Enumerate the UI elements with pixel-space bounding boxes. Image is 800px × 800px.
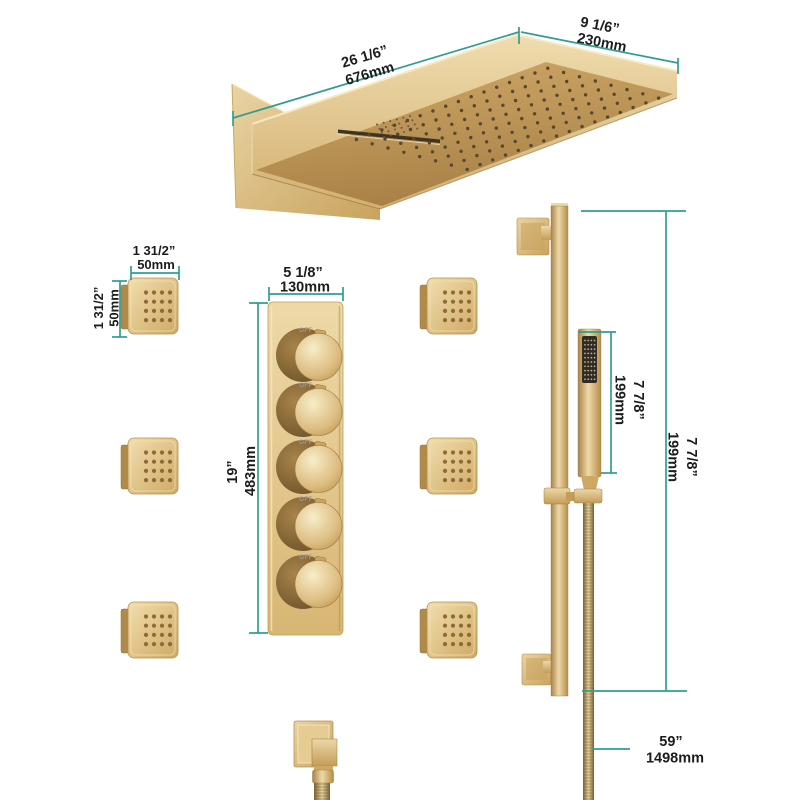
hand-shower-nozzle-dot	[594, 361, 596, 363]
rain-nozzle-dot	[444, 105, 447, 108]
rain-nozzle-dot	[540, 89, 543, 92]
mist-nozzle-dot	[381, 132, 383, 134]
rain-nozzle-dot	[434, 159, 437, 162]
wall-supply-outlet	[294, 721, 337, 800]
rain-nozzle-dot	[542, 139, 545, 142]
hand-shower-nozzle-dot	[594, 340, 596, 342]
knob-off-label: OFF	[299, 497, 313, 503]
slide-bar-length-mm: 199mm	[665, 432, 681, 482]
rain-nozzle-dot	[590, 111, 593, 114]
hand-shower-nozzle-dot	[591, 340, 593, 342]
rain-nozzle-dot	[511, 90, 514, 93]
mist-nozzle-dot	[414, 123, 416, 125]
hand-shower-nozzle-dot	[591, 365, 593, 367]
rain-nozzle-dot	[628, 97, 631, 100]
hand-shower-nozzle-dot	[584, 370, 586, 372]
hand-shower-length-mm: 199mm	[612, 375, 628, 425]
hand-shower-nozzle-dot	[584, 378, 586, 380]
rain-nozzle-dot	[529, 144, 532, 147]
hand-shower-nozzle-dot	[591, 370, 593, 372]
knob-handle	[295, 334, 342, 381]
mist-nozzle-dot	[402, 117, 404, 119]
jet-height-inches: 1 31/2”	[91, 287, 106, 330]
rain-nozzle-dot	[456, 141, 459, 144]
rain-nozzle-dot	[409, 128, 412, 131]
valve-width-mm: 130mm	[280, 280, 330, 296]
hand-shower-nozzle-dot	[594, 348, 596, 350]
slide-bar	[551, 206, 568, 696]
rain-nozzle-dot	[581, 84, 584, 87]
rain-nozzle-dot	[428, 141, 431, 144]
mist-nozzle-dot	[416, 128, 418, 130]
rain-nozzle-dot	[485, 99, 488, 102]
rain-nozzle-dot	[476, 113, 479, 116]
rain-nozzle-dot	[600, 97, 603, 100]
rain-nozzle-dot	[491, 158, 494, 161]
rain-nozzle-dot	[524, 85, 527, 88]
rain-nozzle-dot	[504, 153, 507, 156]
thermostatic-valve: OFFOFFOFFOFFOFF	[268, 302, 343, 635]
rain-nozzle-dot	[577, 116, 580, 119]
hand-shower-nozzle-dot	[591, 378, 593, 380]
rain-nozzle-dot	[367, 133, 370, 136]
rain-nozzle-dot	[393, 124, 396, 127]
rain-nozzle-dot	[526, 135, 529, 138]
rain-nozzle-dot	[587, 102, 590, 105]
rain-nozzle-dot	[482, 131, 485, 134]
slide-bar-assembly	[517, 203, 568, 696]
mist-nozzle-dot	[401, 127, 403, 129]
rain-nozzle-dot	[488, 149, 491, 152]
rain-nozzle-dot	[406, 119, 409, 122]
rain-nozzle-dot	[425, 132, 428, 135]
hand-shower-nozzle-dot	[587, 365, 589, 367]
rain-nozzle-dot	[466, 127, 469, 130]
rain-nozzle-dot	[527, 94, 530, 97]
rain-nozzle-dot	[450, 163, 453, 166]
valve-height-inches: 19”	[225, 460, 241, 483]
hand-shower-nozzle-dot	[584, 357, 586, 359]
rain-nozzle-dot	[498, 135, 501, 138]
knob-handle	[295, 503, 342, 550]
rain-nozzle-dot	[552, 85, 555, 88]
rain-nozzle-dot	[475, 154, 478, 157]
rain-nozzle-dot	[419, 114, 422, 117]
rain-nozzle-dot	[415, 146, 418, 149]
rain-nozzle-dot	[580, 125, 583, 128]
rain-nozzle-dot	[657, 96, 660, 99]
mist-nozzle-dot	[398, 123, 400, 125]
rain-nozzle-dot	[584, 93, 587, 96]
hand-shower-nozzle-dot	[587, 340, 589, 342]
knob-off-label: OFF	[299, 440, 313, 446]
mist-nozzle-dot	[403, 131, 405, 133]
rain-nozzle-dot	[568, 130, 571, 133]
hose-length-mm: 1498mm	[646, 751, 704, 767]
rain-nozzle-dot	[619, 111, 622, 114]
rain-nozzle-dot	[507, 122, 510, 125]
rain-nozzle-dot	[469, 136, 472, 139]
rain-nozzle-dot	[558, 103, 561, 106]
rain-nozzle-dot	[546, 67, 549, 70]
rain-nozzle-dot	[501, 104, 504, 107]
rain-nozzle-dot	[546, 107, 549, 110]
rain-nozzle-dot	[568, 89, 571, 92]
rain-nozzle-dot	[495, 126, 498, 129]
rain-nozzle-dot	[609, 84, 612, 87]
body-jet	[420, 278, 477, 334]
outlet-nut	[313, 770, 334, 783]
hand-shower-nozzle-dot	[594, 353, 596, 355]
knob-off-label: OFF	[299, 328, 313, 334]
rain-shower-head	[232, 35, 677, 220]
dim-valve-width: 5 1/8” 130mm	[269, 265, 343, 301]
rain-nozzle-dot	[520, 117, 523, 120]
hand-shower-holder	[574, 489, 602, 503]
rain-nozzle-dot	[533, 112, 536, 115]
rain-nozzle-dot	[485, 140, 488, 143]
valve-knobs: OFFOFFOFFOFFOFF	[276, 328, 342, 609]
hand-shower-nozzle-dot	[584, 340, 586, 342]
hand-shower-nozzle-dot	[584, 374, 586, 376]
rain-nozzle-dot	[616, 102, 619, 105]
hand-shower-nozzle-dot	[587, 361, 589, 363]
rain-nozzle-dot	[523, 126, 526, 129]
rain-nozzle-dot	[457, 100, 460, 103]
rain-nozzle-dot	[355, 138, 358, 141]
rain-nozzle-dot	[470, 95, 473, 98]
rain-nozzle-dot	[450, 123, 453, 126]
hand-shower-length-inches: 7 7/8”	[630, 380, 646, 420]
hand-shower-nozzle-dot	[591, 374, 593, 376]
mist-nozzle-dot	[378, 128, 380, 130]
hand-shower-nozzle-dot	[587, 348, 589, 350]
hand-shower-nozzle-dot	[584, 353, 586, 355]
hand-shower-nozzle-dot	[584, 365, 586, 367]
mist-nozzle-dot	[387, 130, 389, 132]
hand-shower-nozzle-dot	[594, 357, 596, 359]
rain-nozzle-dot	[447, 154, 450, 157]
rain-nozzle-dot	[460, 109, 463, 112]
hand-shower-nozzle-dot	[594, 374, 596, 376]
hand-shower-nozzle-dot	[591, 348, 593, 350]
hand-shower-nozzle-dot	[584, 361, 586, 363]
rain-nozzle-dot	[510, 131, 513, 134]
hand-shower-nozzle-dot	[584, 348, 586, 350]
valve-height-mm: 483mm	[243, 446, 259, 496]
rain-nozzle-dot	[463, 118, 466, 121]
jet-width-inches: 1 31/2”	[133, 243, 176, 258]
hand-shower-nozzle-dot	[587, 378, 589, 380]
rain-nozzle-dot	[396, 133, 399, 136]
rain-nozzle-dot	[466, 168, 469, 171]
rain-nozzle-dot	[501, 144, 504, 147]
rain-nozzle-dot	[593, 120, 596, 123]
rain-nozzle-dot	[495, 86, 498, 89]
rain-nozzle-dot	[492, 117, 495, 120]
mist-nozzle-dot	[376, 124, 378, 126]
outlet-elbow	[312, 739, 337, 766]
rain-nozzle-dot	[412, 137, 415, 140]
rain-nozzle-dot	[422, 123, 425, 126]
rain-nozzle-dot	[383, 137, 386, 140]
rain-nozzle-dot	[386, 146, 389, 149]
body-jet	[420, 438, 477, 494]
rain-nozzle-dot	[434, 118, 437, 121]
slide-bar-length-inches: 7 7/8”	[683, 437, 699, 477]
hand-shower-nozzle-dot	[587, 374, 589, 376]
rain-nozzle-dot	[459, 150, 462, 153]
rain-nozzle-dot	[549, 76, 552, 79]
hand-shower-nozzle-dot	[584, 344, 586, 346]
hand-shower-nozzle-dot	[591, 361, 593, 363]
rain-nozzle-dot	[482, 90, 485, 93]
rain-nozzle-dot	[504, 113, 507, 116]
shower-system-dimension-diagram: OFFOFFOFFOFFOFF	[0, 0, 800, 800]
rain-nozzle-dot	[521, 76, 524, 79]
knob-handle	[295, 561, 342, 608]
body-jet	[121, 278, 178, 334]
rain-nozzle-dot	[478, 163, 481, 166]
hand-shower-nozzle-dot	[587, 344, 589, 346]
hose-length-inches: 59”	[659, 734, 682, 750]
rain-nozzle-dot	[552, 125, 555, 128]
rain-nozzle-dot	[543, 98, 546, 101]
rain-nozzle-dot	[574, 107, 577, 110]
hand-shower-nozzle-dot	[594, 365, 596, 367]
knob-handle	[295, 446, 342, 493]
hand-shower-nozzle-dot	[587, 370, 589, 372]
knob-off-label: OFF	[299, 555, 313, 561]
rain-nozzle-dot	[594, 79, 597, 82]
rain-nozzle-dot	[539, 130, 542, 133]
knob-off-label: OFF	[299, 383, 313, 389]
rain-nozzle-dot	[536, 80, 539, 83]
rain-nozzle-dot	[549, 116, 552, 119]
rain-nozzle-dot	[399, 142, 402, 145]
rain-nozzle-dot	[517, 108, 520, 111]
rain-nozzle-dot	[565, 121, 568, 124]
dim-valve-height: 19” 483mm	[225, 303, 268, 633]
hand-shower-nozzle-dot	[591, 353, 593, 355]
rain-nozzle-dot	[447, 114, 450, 117]
rain-nozzle-dot	[473, 104, 476, 107]
mist-nozzle-dot	[411, 119, 413, 121]
rain-nozzle-dot	[498, 95, 501, 98]
rain-nozzle-dot	[380, 128, 383, 131]
jet-height-mm: 50mm	[107, 289, 122, 327]
rain-nozzle-dot	[613, 93, 616, 96]
mist-nozzle-dot	[396, 118, 398, 120]
rain-nozzle-dot	[555, 94, 558, 97]
mist-nozzle-dot	[409, 115, 411, 117]
rain-nozzle-dot	[644, 101, 647, 104]
mist-nozzle-dot	[390, 134, 392, 136]
rain-nozzle-dot	[514, 140, 517, 143]
rain-nozzle-dot	[479, 122, 482, 125]
rain-nozzle-dot	[606, 115, 609, 118]
rain-nozzle-dot	[441, 136, 444, 139]
jet-width-mm: 50mm	[137, 257, 175, 272]
hose-connector	[581, 476, 599, 490]
mist-nozzle-dot	[389, 120, 391, 122]
mist-nozzle-dot	[407, 125, 409, 127]
hand-shower-nozzle-dot	[591, 344, 593, 346]
rain-nozzle-dot	[565, 80, 568, 83]
rain-nozzle-dot	[371, 142, 374, 145]
body-jet	[420, 602, 477, 658]
rain-nozzle-dot	[453, 132, 456, 135]
rain-nozzle-dot	[578, 75, 581, 78]
rain-nozzle-dot	[555, 134, 558, 137]
rain-nozzle-dot	[625, 88, 628, 91]
hand-shower-nozzle-dot	[594, 344, 596, 346]
rain-nozzle-dot	[603, 106, 606, 109]
rain-nozzle-dot	[530, 103, 533, 106]
dim-jet-width: 1 31/2” 50mm	[131, 243, 179, 280]
rain-nozzle-dot	[418, 155, 421, 158]
rain-nozzle-dot	[437, 127, 440, 130]
rain-nozzle-dot	[641, 92, 644, 95]
rain-nozzle-dot	[488, 108, 491, 111]
rain-nozzle-dot	[508, 81, 511, 84]
hand-shower-nozzle-dot	[594, 370, 596, 372]
rain-nozzle-dot	[631, 106, 634, 109]
mist-nozzle-dot	[385, 126, 387, 128]
rain-nozzle-dot	[533, 71, 536, 74]
body-jet	[121, 602, 178, 658]
rain-nozzle-dot	[514, 99, 517, 102]
rain-nozzle-dot	[517, 149, 520, 152]
hand-shower-nozzle-dot	[587, 357, 589, 359]
body-jet	[121, 438, 178, 494]
rain-nozzle-dot	[402, 151, 405, 154]
mist-nozzle-dot	[383, 122, 385, 124]
rain-nozzle-dot	[472, 145, 475, 148]
rain-nozzle-dot	[462, 159, 465, 162]
knob-handle	[295, 389, 342, 436]
rain-nozzle-dot	[431, 109, 434, 112]
rain-nozzle-dot	[431, 150, 434, 153]
rain-nozzle-dot	[562, 71, 565, 74]
hand-shower-nozzle-dot	[587, 353, 589, 355]
dim-hose: 59” 1498mm	[592, 734, 704, 767]
rain-nozzle-dot	[562, 112, 565, 115]
rain-nozzle-dot	[444, 145, 447, 148]
rain-nozzle-dot	[597, 88, 600, 91]
hand-shower-nozzle-dot	[594, 378, 596, 380]
hand-shower-nozzle-dot	[591, 357, 593, 359]
mist-nozzle-dot	[394, 129, 396, 131]
hand-shower-spray-face	[582, 336, 597, 383]
rain-nozzle-dot	[571, 98, 574, 101]
rain-nozzle-dot	[536, 121, 539, 124]
